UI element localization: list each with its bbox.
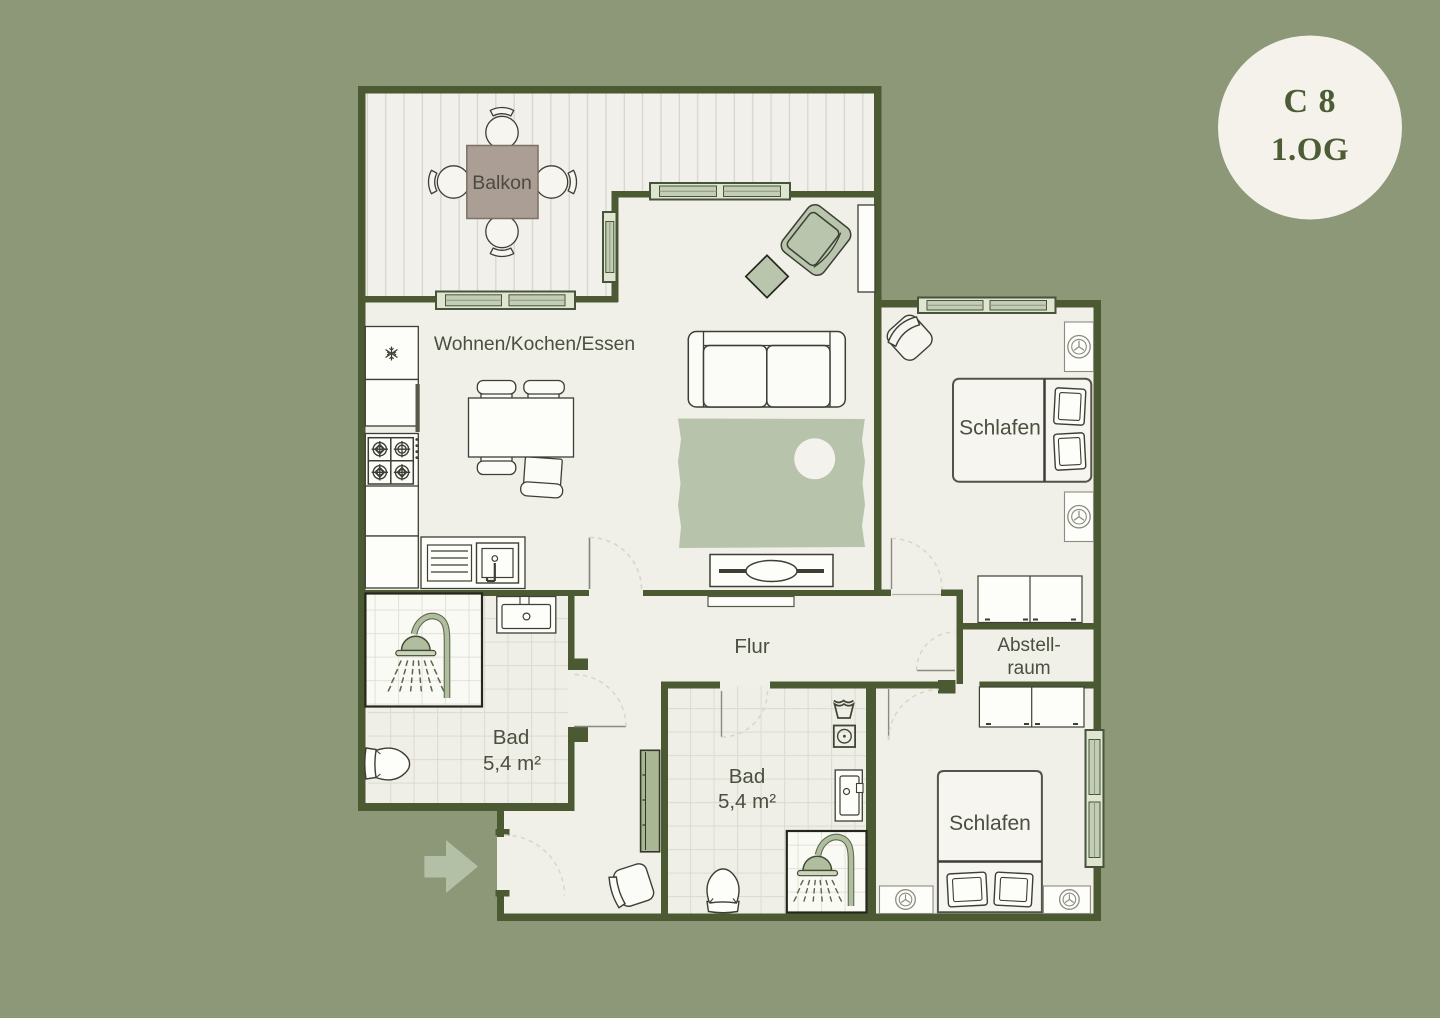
svg-text:5,4 m²: 5,4 m² (718, 790, 776, 813)
svg-text:Schlafen: Schlafen (949, 812, 1031, 835)
svg-text:C 8: C 8 (1283, 83, 1336, 120)
svg-text:Abstell-: Abstell- (997, 635, 1060, 656)
svg-text:1.OG: 1.OG (1271, 132, 1349, 168)
svg-text:raum: raum (1007, 658, 1050, 679)
svg-text:Wohnen/Kochen/Essen: Wohnen/Kochen/Essen (434, 334, 635, 355)
svg-text:Schlafen: Schlafen (959, 417, 1041, 440)
svg-text:Balkon: Balkon (472, 172, 532, 194)
svg-text:Flur: Flur (734, 635, 769, 658)
svg-text:5,4 m²: 5,4 m² (483, 752, 541, 775)
svg-text:Bad: Bad (729, 765, 765, 788)
svg-text:Bad: Bad (493, 726, 529, 749)
